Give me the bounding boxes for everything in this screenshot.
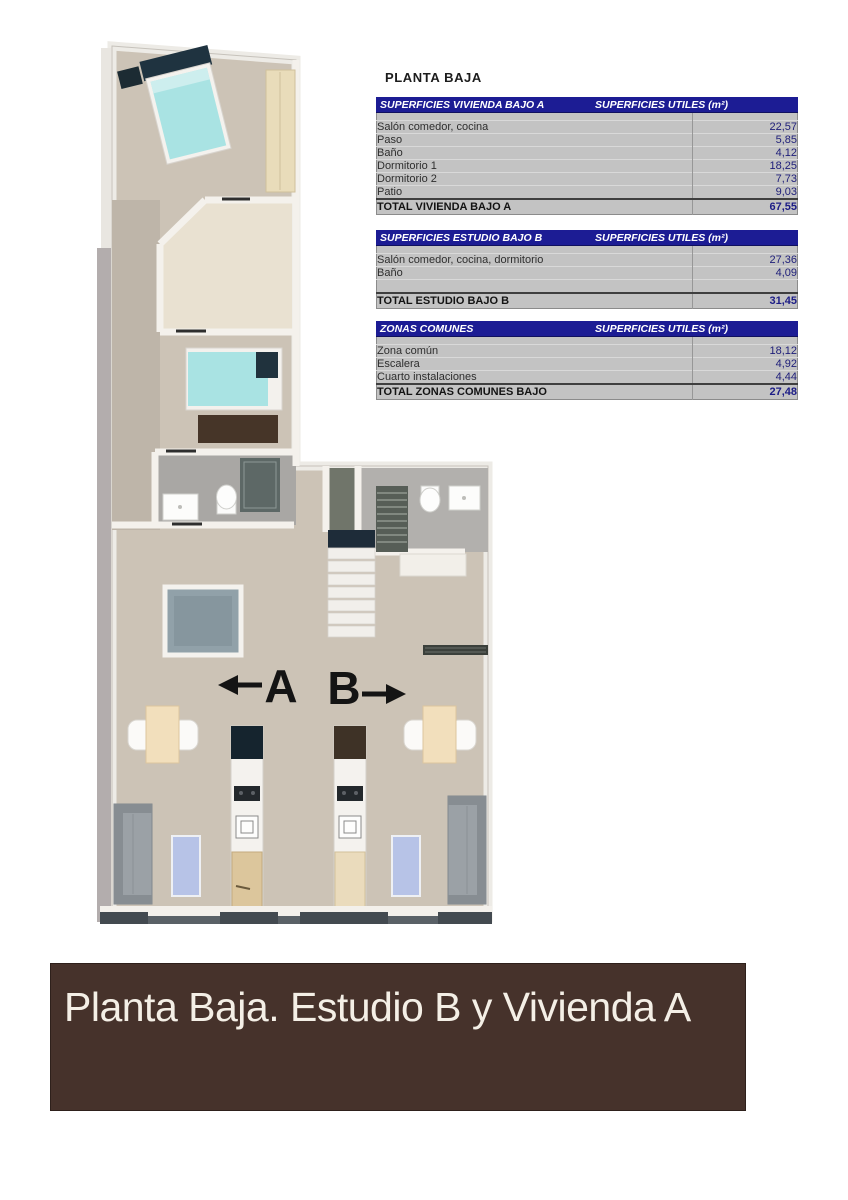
window-panel-right xyxy=(392,836,420,896)
table-header-right: SUPERFICIES UTILES (m²) xyxy=(595,97,728,113)
west-wall xyxy=(97,248,111,922)
table-row: Paso5,85 xyxy=(377,134,798,147)
table-header-left: SUPERFICIES VIVIENDA BAJO A xyxy=(380,99,544,111)
table-body: Salón comedor, cocina22,57Paso5,85Baño4,… xyxy=(376,113,798,215)
table-row: Cuarto instalaciones4,44 xyxy=(377,371,798,385)
row-label: Dormitorio 1 xyxy=(377,160,693,173)
row-value: 5,85 xyxy=(693,134,798,147)
table-zonas-comunes: ZONAS COMUNES SUPERFICIES UTILES (m²) Zo… xyxy=(376,321,798,400)
table-vivienda-a: SUPERFICIES VIVIENDA BAJO A SUPERFICIES … xyxy=(376,97,798,215)
table-header-right: SUPERFICIES UTILES (m²) xyxy=(595,230,728,246)
row-value xyxy=(693,280,798,294)
total-label: TOTAL ZONAS COMUNES BAJO xyxy=(377,384,693,400)
counter-b xyxy=(400,554,466,576)
row-label: Dormitorio 2 xyxy=(377,173,693,186)
total-row: TOTAL ZONAS COMUNES BAJO 27,48 xyxy=(377,384,798,400)
row-value: 4,44 xyxy=(693,371,798,385)
document-page: A B xyxy=(0,0,848,1200)
table-header: SUPERFICIES VIVIENDA BAJO A SUPERFICIES … xyxy=(376,97,798,113)
row-value: 22,57 xyxy=(693,121,798,134)
table-row xyxy=(377,280,798,294)
total-value: 27,48 xyxy=(693,384,798,400)
table-row: Dormitorio 27,73 xyxy=(377,173,798,186)
row-value: 18,12 xyxy=(693,345,798,358)
unit-a-label: A xyxy=(264,660,297,712)
row-value: 4,09 xyxy=(693,267,798,280)
table-estudio-b: SUPERFICIES ESTUDIO BAJO B SUPERFICIES U… xyxy=(376,230,798,309)
shower-a xyxy=(240,458,280,512)
sink-a xyxy=(163,494,198,520)
table-row: Dormitorio 118,25 xyxy=(377,160,798,173)
row-value: 9,03 xyxy=(693,186,798,200)
kitchen-island-b xyxy=(334,726,366,916)
toilet-a xyxy=(217,485,237,514)
row-label: Paso xyxy=(377,134,693,147)
row-label: Baño xyxy=(377,147,693,160)
west-wall-top xyxy=(101,48,111,248)
sink-b xyxy=(449,486,480,510)
row-value: 7,73 xyxy=(693,173,798,186)
total-label: TOTAL ESTUDIO BAJO B xyxy=(377,293,693,309)
toilet-b xyxy=(420,486,440,512)
rack-strip xyxy=(423,645,488,655)
table-row: Baño4,09 xyxy=(377,267,798,280)
sofa-left xyxy=(114,804,152,904)
page-title: PLANTA BAJA xyxy=(385,70,482,85)
total-value: 31,45 xyxy=(693,293,798,309)
sofa-right xyxy=(448,796,486,904)
window-panel-left xyxy=(172,836,200,896)
table-header-left: SUPERFICIES ESTUDIO BAJO B xyxy=(380,232,542,244)
table-row: Salón comedor, cocina, dormitorio27,36 xyxy=(377,254,798,267)
row-label: Zona común xyxy=(377,345,693,358)
row-value: 27,36 xyxy=(693,254,798,267)
table-header-left: ZONAS COMUNES xyxy=(380,323,473,335)
installation-square xyxy=(165,587,241,655)
row-value: 18,25 xyxy=(693,160,798,173)
table-row: Zona común18,12 xyxy=(377,345,798,358)
table-header-right: SUPERFICIES UTILES (m²) xyxy=(595,321,728,337)
table-row: Escalera4,92 xyxy=(377,358,798,371)
staircase xyxy=(328,530,375,637)
spacer-row xyxy=(377,113,798,121)
utility-floor xyxy=(326,468,358,532)
bedroom2-bed xyxy=(186,348,282,410)
row-label: Salón comedor, cocina, dormitorio xyxy=(377,254,693,267)
table-body: Salón comedor, cocina, dormitorio27,36Ba… xyxy=(376,246,798,309)
total-row: TOTAL VIVIENDA BAJO A 67,55 xyxy=(377,199,798,215)
row-label: Cuarto instalaciones xyxy=(377,371,693,385)
kitchen-island-a xyxy=(231,726,263,916)
row-label: Patio xyxy=(377,186,693,200)
table-header: ZONAS COMUNES SUPERFICIES UTILES (m²) xyxy=(376,321,798,337)
spacer-row xyxy=(377,337,798,345)
total-value: 67,55 xyxy=(693,199,798,215)
total-row: TOTAL ESTUDIO BAJO B 31,45 xyxy=(377,293,798,309)
table-row: Salón comedor, cocina22,57 xyxy=(377,121,798,134)
threshold-strip xyxy=(100,916,492,924)
dresser xyxy=(198,415,278,443)
table-header: SUPERFICIES ESTUDIO BAJO B SUPERFICIES U… xyxy=(376,230,798,246)
caption-text: Planta Baja. Estudio B y Vivienda A xyxy=(51,964,745,1031)
caption-banner: Planta Baja. Estudio B y Vivienda A xyxy=(50,963,746,1111)
surface-tables: SUPERFICIES VIVIENDA BAJO A SUPERFICIES … xyxy=(376,97,798,415)
spacer-row xyxy=(377,246,798,254)
row-value: 4,92 xyxy=(693,358,798,371)
row-value: 4,12 xyxy=(693,147,798,160)
row-label: Baño xyxy=(377,267,693,280)
table-row: Patio9,03 xyxy=(377,186,798,200)
unit-b-label: B xyxy=(327,662,360,714)
table-row: Baño4,12 xyxy=(377,147,798,160)
total-label: TOTAL VIVIENDA BAJO A xyxy=(377,199,693,215)
table-body: Zona común18,12Escalera4,92Cuarto instal… xyxy=(376,337,798,400)
row-label: Salón comedor, cocina xyxy=(377,121,693,134)
row-label: Escalera xyxy=(377,358,693,371)
row-label xyxy=(377,280,693,294)
slatted-grate xyxy=(376,486,408,552)
